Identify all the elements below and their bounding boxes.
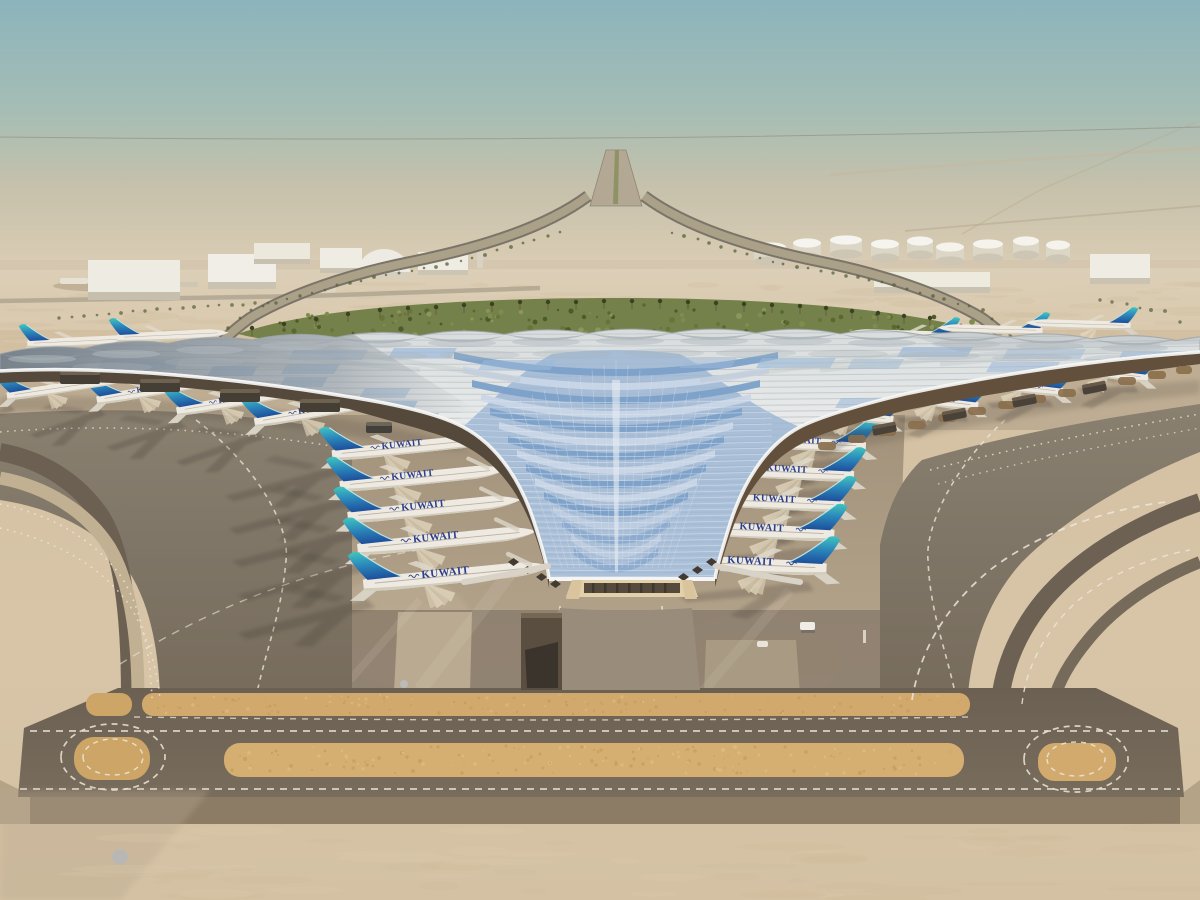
svg-text:KUWAIT: KUWAIT: [739, 521, 784, 534]
svg-text:KUWAIT: KUWAIT: [727, 554, 774, 568]
svg-text:KUWAIT: KUWAIT: [753, 492, 797, 505]
